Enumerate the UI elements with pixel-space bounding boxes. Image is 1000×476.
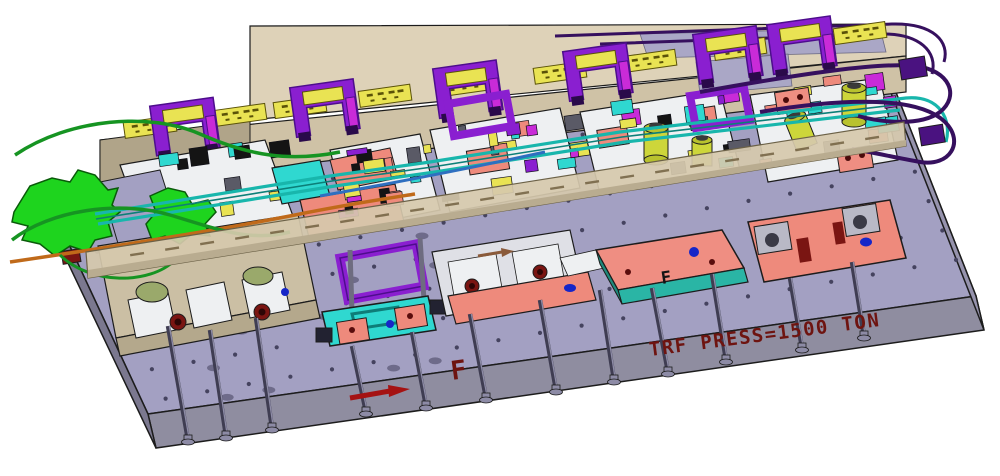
cad-render-stage: F bbox=[0, 0, 1000, 476]
hole-dot bbox=[233, 353, 237, 357]
hole-dot bbox=[275, 345, 279, 349]
rail-clamp-foot bbox=[701, 78, 714, 89]
mechanism-detail-block bbox=[823, 75, 842, 87]
hole-dot bbox=[940, 228, 944, 232]
guide-rod-foot-pad bbox=[220, 435, 233, 441]
mechanism-detail-block bbox=[406, 147, 421, 164]
station1-blue-dot bbox=[281, 288, 289, 296]
hole-dot bbox=[621, 316, 625, 320]
guide-rod-foot-pad bbox=[420, 405, 433, 411]
mechanism-detail-block bbox=[557, 157, 576, 169]
hole-dot bbox=[954, 258, 958, 262]
hole-oval bbox=[387, 365, 400, 372]
station1-lifter-disc-1 bbox=[136, 282, 168, 302]
hole-dot bbox=[496, 338, 500, 342]
hole-dot bbox=[191, 360, 195, 364]
hose-manifold-2 bbox=[919, 124, 946, 146]
hole-dot bbox=[205, 389, 209, 393]
mechanism-detail-block bbox=[524, 159, 538, 172]
hole-dot bbox=[705, 206, 709, 210]
hole-dot bbox=[317, 242, 321, 246]
hole-dot bbox=[871, 177, 875, 181]
rail-clamp-foot bbox=[346, 125, 359, 136]
station2-blue-dot bbox=[386, 320, 394, 328]
mechanism-detail-block bbox=[189, 146, 209, 166]
hole-dot bbox=[455, 345, 459, 349]
station3-blue-dot bbox=[564, 284, 576, 292]
hole-dot bbox=[400, 228, 404, 232]
guide-rod-foot-pad bbox=[858, 335, 871, 341]
f-plate-maroon-dot-1 bbox=[625, 269, 631, 275]
station3-bushing-2-bore bbox=[537, 269, 543, 275]
guide-rod-foot-pad bbox=[608, 379, 621, 385]
rail-clamp-foot bbox=[298, 131, 311, 142]
station3-bushing-1-bore bbox=[469, 283, 475, 289]
hole-dot bbox=[829, 280, 833, 284]
hole-dot bbox=[330, 272, 334, 276]
guide-rod-foot-pad bbox=[550, 389, 563, 395]
hole-dot bbox=[912, 265, 916, 269]
station1-pocket-2 bbox=[186, 282, 232, 328]
hole-dot bbox=[622, 221, 626, 225]
guide-rod-foot-pad bbox=[720, 359, 733, 365]
hole-dot bbox=[704, 302, 708, 306]
hole-dot bbox=[150, 367, 154, 371]
station5-cylinder-1-cap bbox=[847, 83, 861, 89]
hole-dot bbox=[788, 192, 792, 196]
station2-end-clamp-left bbox=[316, 328, 332, 342]
hole-dot bbox=[607, 287, 611, 291]
mechanism-detail-block bbox=[423, 144, 431, 153]
hole-dot bbox=[358, 235, 362, 239]
hole-dot bbox=[441, 316, 445, 320]
mechanism-detail-block bbox=[224, 177, 241, 192]
mechanism-detail-block bbox=[158, 152, 179, 166]
mechanism-detail-block bbox=[611, 99, 634, 115]
rail-clamp-foot bbox=[571, 95, 584, 106]
station1-lifter-disc-2 bbox=[243, 267, 273, 285]
station5-clamp1-bore bbox=[765, 233, 779, 247]
hole-dot bbox=[247, 382, 251, 386]
guide-rod-foot-pad bbox=[796, 347, 809, 353]
rail-clamp-foot bbox=[489, 106, 502, 117]
cad-viewport: F bbox=[0, 0, 1000, 476]
station2-clamp1-bore bbox=[349, 327, 355, 333]
guide-rod-foot-pad bbox=[662, 371, 675, 377]
hole-dot bbox=[746, 199, 750, 203]
hole-dot bbox=[330, 367, 334, 371]
guide-rod-foot-pad bbox=[182, 439, 195, 445]
f-plate-blue-dot bbox=[689, 247, 699, 257]
guide-rod-foot-pad bbox=[360, 411, 373, 417]
hole-dot bbox=[164, 397, 168, 401]
hole-dot bbox=[372, 265, 376, 269]
hose-manifold-1 bbox=[899, 56, 928, 80]
hole-dot bbox=[538, 331, 542, 335]
hole-dot bbox=[830, 184, 834, 188]
hole-dot bbox=[372, 360, 376, 364]
mechanism-detail-block bbox=[526, 125, 538, 136]
station2-clamp2-bore bbox=[407, 313, 413, 319]
hole-dot bbox=[663, 213, 667, 217]
hole-dot bbox=[663, 309, 667, 313]
station5-clamp2-bore bbox=[853, 215, 867, 229]
guide-rod-foot-pad bbox=[480, 397, 493, 403]
hole-dot bbox=[746, 294, 750, 298]
guide-rod-foot-pad bbox=[266, 427, 279, 433]
station5-plate1-hole-2 bbox=[797, 94, 803, 100]
hole-dot bbox=[580, 324, 584, 328]
station5-blue-dot bbox=[860, 238, 872, 247]
mechanism-detail-block bbox=[620, 118, 637, 129]
hole-dot bbox=[913, 170, 917, 174]
station1-bushing-2-bore bbox=[259, 309, 266, 316]
station2-post-1 bbox=[350, 250, 352, 312]
station1-bushing-1-bore bbox=[175, 319, 182, 326]
hole-dot bbox=[580, 228, 584, 232]
hole-dot bbox=[288, 375, 292, 379]
station5-plate1-hole-1 bbox=[783, 97, 789, 103]
f-plate-maroon-dot-2 bbox=[709, 259, 715, 265]
hole-dot bbox=[927, 199, 931, 203]
rail-clamp-foot bbox=[619, 89, 632, 100]
hole-oval bbox=[429, 357, 442, 364]
station4-cylinder-2-cap bbox=[696, 135, 708, 141]
hole-dot bbox=[871, 272, 875, 276]
